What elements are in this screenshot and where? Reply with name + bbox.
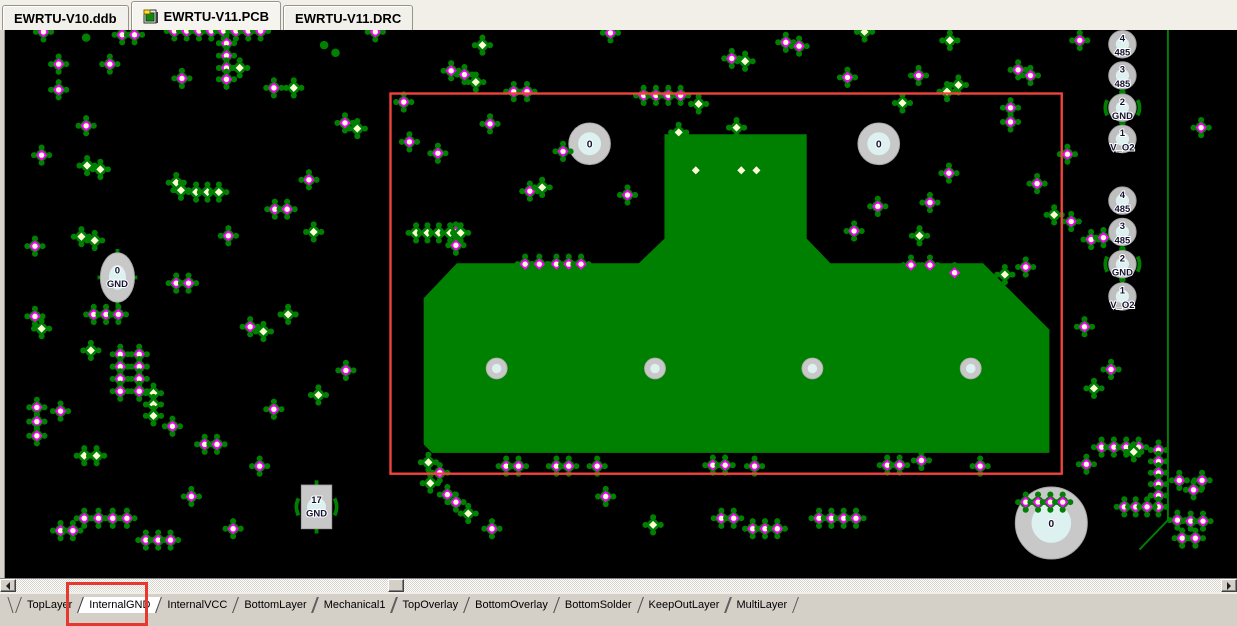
component-pad[interactable]: [532, 177, 553, 198]
via-pad[interactable]: [1026, 173, 1047, 194]
connector-pad[interactable]: 2GND: [1105, 89, 1139, 126]
via-pad[interactable]: [249, 456, 270, 477]
via-pad[interactable]: [1015, 256, 1036, 277]
doc-tab-ewrtu-v11-pcb[interactable]: EWRTU-V11.PCB: [131, 1, 281, 30]
via-pad[interactable]: [240, 316, 261, 337]
component-pad[interactable]: [90, 159, 111, 180]
layer-tab-label: BottomOverlay: [475, 599, 548, 611]
via-pad[interactable]: [124, 30, 145, 45]
via-pad[interactable]: [26, 425, 47, 446]
via-pad[interactable]: [441, 60, 462, 81]
polygon-mount-hole[interactable]: [486, 358, 507, 379]
component-pad[interactable]: [892, 92, 913, 113]
layer-tab-label: BottomLayer: [244, 599, 306, 611]
connector-pad[interactable]: 1V_O2: [1109, 283, 1136, 311]
via-pad[interactable]: [938, 163, 959, 184]
doc-tab-label: EWRTU-V10.ddb: [14, 11, 117, 26]
doc-tab-ewrtu-v11-drc[interactable]: EWRTU-V11.DRC: [283, 5, 413, 30]
layer-tab-label: Mechanical1: [324, 599, 386, 611]
pad-net-label: GND: [107, 279, 128, 290]
pcb-document-icon: [143, 9, 159, 24]
via-pad[interactable]: [216, 69, 237, 90]
component-pad[interactable]: [939, 30, 960, 51]
via-pad[interactable]: [1190, 117, 1211, 138]
via-pad[interactable]: [775, 32, 796, 53]
connector-pad[interactable]: 4485: [1109, 187, 1136, 215]
via-pad[interactable]: [788, 35, 809, 56]
layer-tab-label: InternalGND: [89, 599, 150, 611]
doc-tab-label: EWRTU-V11.PCB: [164, 9, 269, 24]
component-pad[interactable]: [82, 33, 91, 42]
pad-net-label: GND: [306, 508, 327, 519]
via-pad[interactable]: [600, 30, 621, 43]
via-pad[interactable]: [48, 54, 69, 75]
connector-pad[interactable]: 3485: [1109, 62, 1136, 90]
component-pad[interactable]: [734, 51, 755, 72]
via-pad[interactable]: [1057, 144, 1078, 165]
canvas-left-border: [0, 30, 5, 578]
via-pad[interactable]: [595, 486, 616, 507]
polygon-mount-hole[interactable]: [802, 358, 823, 379]
connector-pad[interactable]: 3485: [1109, 218, 1136, 246]
via-pad[interactable]: [335, 360, 356, 381]
component-pad[interactable]: [642, 514, 663, 535]
via-pad[interactable]: [76, 115, 97, 136]
component-pad[interactable]: [909, 225, 930, 246]
layer-tab-label: KeepOutLayer: [649, 599, 720, 611]
component-pad[interactable]: [208, 182, 229, 203]
via-pad[interactable]: [62, 520, 83, 541]
component-pad[interactable]: [277, 304, 298, 325]
layer-tab-multilayer[interactable]: MultiLayer: [727, 597, 796, 613]
via-pad[interactable]: [50, 401, 71, 422]
polygon-mount-hole[interactable]: [960, 358, 981, 379]
pin-number: 3: [1120, 221, 1125, 232]
via-pad[interactable]: [116, 508, 137, 529]
pin-number: 4: [1120, 33, 1126, 44]
pin-net-label: 485: [1115, 48, 1131, 59]
via-pad[interactable]: [171, 68, 192, 89]
via-pad[interactable]: [277, 199, 298, 220]
component-pad[interactable]: [283, 77, 304, 98]
via-pad[interactable]: [516, 81, 537, 102]
via-pad[interactable]: [1074, 316, 1095, 337]
via-pad[interactable]: [845, 508, 866, 529]
scroll-left-button[interactable]: [0, 579, 16, 592]
pad-number: 0: [115, 266, 120, 277]
via-pad[interactable]: [48, 79, 69, 100]
document-tab-bar: EWRTU-V10.ddbEWRTU-V11.PCBEWRTU-V11.DRC: [0, 0, 1237, 30]
pin-net-label: GND: [1112, 111, 1133, 122]
polygon-mount-hole[interactable]: [645, 358, 666, 379]
component-pad[interactable]: [854, 30, 875, 43]
component-pad[interactable]: [71, 226, 92, 247]
via-pad[interactable]: [670, 85, 691, 106]
via-pad[interactable]: [479, 113, 500, 134]
labeled-pad-gnd[interactable]: 17GND: [296, 480, 336, 533]
connector-pad[interactable]: 2GND: [1105, 246, 1139, 283]
layer-tab-label: TopOverlay: [402, 599, 458, 611]
component-pad[interactable]: [84, 230, 105, 251]
via-pad[interactable]: [250, 30, 271, 42]
via-pad[interactable]: [99, 54, 120, 75]
component-pad[interactable]: [76, 155, 97, 176]
via-pad[interactable]: [110, 381, 131, 402]
via-pad[interactable]: [263, 77, 284, 98]
via-pad[interactable]: [721, 48, 742, 69]
pin-net-label: V_O2: [1110, 142, 1134, 153]
hole-label: 0: [587, 140, 593, 151]
layer-tab-label: BottomSolder: [565, 599, 632, 611]
pin-net-label: V_O2: [1110, 300, 1134, 311]
layer-tabbar-lead-slash: [7, 597, 13, 613]
labeled-pad-gnd[interactable]: 0GND: [98, 249, 138, 306]
via-pad[interactable]: [911, 450, 932, 471]
copper-pour-polygon[interactable]: [424, 134, 1050, 453]
via-pad[interactable]: [867, 196, 888, 217]
layer-tab-label: TopLayer: [27, 599, 72, 611]
doc-tab-ewrtu-v10-ddb[interactable]: EWRTU-V10.ddb: [2, 5, 129, 30]
via-pad[interactable]: [519, 181, 540, 202]
right-arrow-icon: [1227, 582, 1231, 590]
via-pad[interactable]: [837, 67, 858, 88]
via-pad[interactable]: [206, 434, 227, 455]
layer-tab-bottomoverlay[interactable]: BottomOverlay: [466, 597, 557, 613]
pin-number: 2: [1120, 97, 1125, 108]
via-pad[interactable]: [908, 65, 929, 86]
via-pad[interactable]: [162, 416, 183, 437]
doc-tab-label: EWRTU-V11.DRC: [295, 11, 401, 26]
horizontal-scrollbar[interactable]: [0, 578, 1237, 592]
via-pad[interactable]: [31, 145, 52, 166]
component-pad[interactable]: [1083, 378, 1104, 399]
pin-number: 4: [1120, 190, 1126, 201]
layer-tab-bottomsolder[interactable]: BottomSolder: [556, 597, 641, 613]
hole-label: 0: [1048, 519, 1054, 530]
layer-tab-topoverlay[interactable]: TopOverlay: [393, 597, 467, 613]
via-pad[interactable]: [298, 169, 319, 190]
component-pad[interactable]: [331, 48, 340, 57]
mounting-hole[interactable]: 0: [858, 123, 900, 165]
layer-tab-internalgnd[interactable]: InternalGND: [80, 597, 159, 613]
via-pad[interactable]: [1000, 111, 1021, 132]
component-pad[interactable]: [86, 445, 107, 466]
via-pad[interactable]: [723, 508, 744, 529]
via-pad[interactable]: [1076, 454, 1097, 475]
pin-net-label: 485: [1115, 204, 1131, 215]
layer-tab-label: InternalVCC: [167, 599, 227, 611]
via-pad[interactable]: [181, 486, 202, 507]
layer-tab-bar: TopLayerInternalGNDInternalVCCBottomLaye…: [0, 592, 1237, 623]
mounting-hole[interactable]: 0: [569, 123, 611, 165]
via-pad[interactable]: [218, 225, 239, 246]
via-pad[interactable]: [399, 131, 420, 152]
via-pad[interactable]: [919, 192, 940, 213]
hole-label: 0: [876, 140, 882, 151]
via-pad[interactable]: [33, 30, 54, 43]
via-pad[interactable]: [427, 143, 448, 164]
component-pad[interactable]: [80, 340, 101, 361]
pin-number: 1: [1120, 286, 1125, 297]
layer-tab-label: MultiLayer: [736, 599, 787, 611]
component-pad[interactable]: [308, 384, 329, 405]
via-pad[interactable]: [365, 30, 386, 43]
via-pad[interactable]: [263, 399, 284, 420]
component-pad[interactable]: [253, 321, 274, 342]
left-arrow-icon: [6, 582, 10, 590]
via-pad[interactable]: [1100, 359, 1121, 380]
via-pad[interactable]: [617, 184, 638, 205]
layer-tab-toplayer[interactable]: TopLayer: [18, 597, 81, 613]
scrollbar-thumb[interactable]: [388, 579, 404, 592]
pin-number: 1: [1120, 128, 1125, 139]
component-pad[interactable]: [303, 221, 324, 242]
component-pad[interactable]: [472, 35, 493, 56]
connector-pad[interactable]: 1V_O2: [1109, 125, 1136, 153]
via-pad[interactable]: [222, 518, 243, 539]
pin-net-label: 485: [1115, 79, 1131, 90]
component-pad[interactable]: [458, 503, 479, 524]
scroll-right-button[interactable]: [1221, 579, 1237, 592]
pin-number: 2: [1120, 253, 1125, 264]
component-pad[interactable]: [229, 57, 250, 78]
layer-tab-bottomlayer[interactable]: BottomLayer: [235, 597, 315, 613]
component-pad[interactable]: [320, 41, 329, 50]
connector-pad[interactable]: 4485: [1109, 30, 1136, 58]
pad-number: 17: [311, 495, 322, 506]
via-pad[interactable]: [481, 518, 502, 539]
pcb-layer-view[interactable]: 0000GND17GND448534852GND1V_O2448534852GN…: [0, 30, 1237, 578]
via-pad[interactable]: [178, 273, 199, 294]
pin-number: 3: [1120, 65, 1125, 76]
via-pad[interactable]: [1069, 30, 1090, 51]
via-pad[interactable]: [160, 529, 181, 550]
via-pad[interactable]: [24, 236, 45, 257]
layer-tab-keepoutlayer[interactable]: KeepOutLayer: [640, 597, 729, 613]
layer-tab-internalvcc[interactable]: InternalVCC: [158, 597, 236, 613]
layer-tab-mechanical1[interactable]: Mechanical1: [315, 597, 395, 613]
via-pad[interactable]: [843, 220, 864, 241]
pin-net-label: 485: [1115, 235, 1131, 246]
component-pad[interactable]: [143, 405, 164, 426]
pin-net-label: GND: [1112, 268, 1133, 279]
via-pad[interactable]: [767, 518, 788, 539]
via-pad[interactable]: [108, 304, 129, 325]
component-pad[interactable]: [688, 93, 709, 114]
pcb-canvas[interactable]: 0000GND17GND448534852GND1V_O2448534852GN…: [0, 30, 1237, 578]
